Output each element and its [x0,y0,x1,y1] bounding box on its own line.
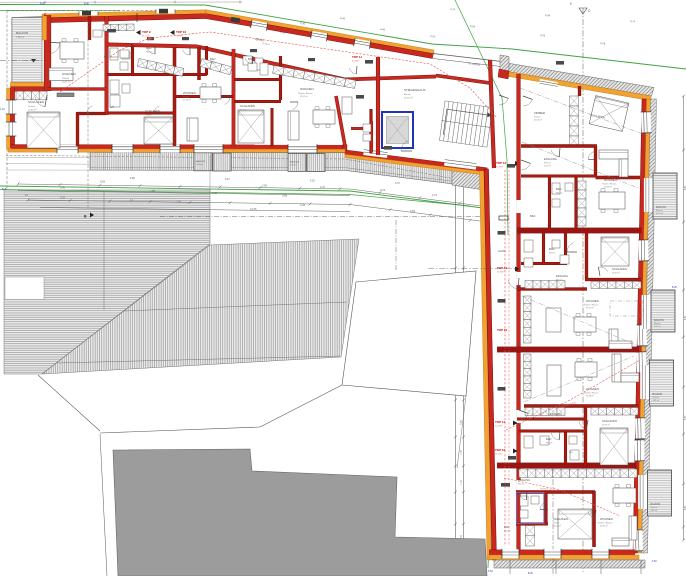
svg-text:4.70: 4.70 [450,7,456,11]
svg-text:SCHLAFEN: SCHLAFEN [553,517,568,521]
svg-text:BALKON: BALKON [653,393,663,396]
svg-text:Fliesen: Fliesen [544,163,550,165]
svg-text:B+B: B+B [528,572,533,575]
svg-text:4.36: 4.36 [300,203,306,207]
svg-text:EINGANG: EINGANG [550,412,562,416]
svg-text:71.99m²: 71.99m² [496,166,504,169]
svg-text:SCHLAFEN: SCHLAFEN [28,100,44,104]
svg-text:ZIMMER: ZIMMER [534,111,545,115]
svg-text:BALKON: BALKON [290,161,299,164]
svg-text:2.90: 2.90 [262,184,268,188]
svg-text:Fliesen: Fliesen [549,253,555,255]
svg-text:Parkett / Fliesen: Parkett / Fliesen [598,522,612,525]
svg-text:3.47: 3.47 [320,185,326,189]
svg-text:WC: WC [569,452,573,454]
svg-text:3.72: 3.72 [432,193,438,197]
svg-text:5.60: 5.60 [652,560,657,563]
svg-text:31.07 m²: 31.07 m² [300,95,308,98]
svg-text:TOP 10: TOP 10 [176,30,187,34]
svg-text:7.80 m²: 7.80 m² [16,36,24,39]
svg-text:5.47: 5.47 [225,178,230,181]
svg-text:SCHLAFEN: SCHLAFEN [240,104,255,108]
svg-text:B+B: B+B [672,286,677,289]
svg-text:GANG: GANG [498,249,506,253]
svg-text:3.40: 3.40 [60,186,66,190]
svg-text:Fliesen: Fliesen [556,193,562,195]
svg-text:WOHNEN: WOHNEN [586,299,599,303]
svg-text:Parkett / Fliesen: Parkett / Fliesen [602,183,616,186]
svg-text:BALKON: BALKON [196,160,205,163]
svg-text:WC: WC [353,128,357,131]
svg-text:Fliesen: Fliesen [651,507,657,509]
svg-text:1.22: 1.22 [460,479,463,485]
svg-text:9.54: 9.54 [470,24,476,28]
svg-text:6.84: 6.84 [410,209,416,213]
svg-text:B+B: B+B [2,188,7,191]
svg-text:3.74: 3.74 [630,19,636,23]
svg-text:2.90: 2.90 [130,177,135,180]
svg-text:WOHNEN: WOHNEN [300,87,314,91]
svg-text:BAD: BAD [210,57,215,61]
svg-text:20.81 m²: 20.81 m² [600,525,608,528]
svg-text:2.30: 2.30 [300,21,306,25]
svg-text:Parkett: Parkett [553,522,560,525]
svg-text:Fliesen: Fliesen [656,210,662,212]
svg-text:TOP 12: TOP 12 [496,161,507,165]
svg-text:2.26: 2.26 [540,33,546,37]
svg-text:B+B: B+B [84,3,89,6]
svg-text:Estrich: Estrich [404,93,411,96]
svg-text:4.81 m²: 4.81 m² [654,325,661,328]
svg-text:Parkett: Parkett [28,105,35,108]
svg-text:Parkett: Parkett [534,116,541,119]
svg-text:54.29m²: 54.29m² [495,425,503,428]
svg-text:9.04: 9.04 [545,13,551,17]
svg-text:25.91 m²: 25.91 m² [62,81,71,84]
svg-text:Parkett: Parkett [183,96,190,99]
svg-text:BALKON: BALKON [651,503,661,506]
svg-text:4.81 m²: 4.81 m² [656,212,663,215]
svg-text:SCHLAFEN: SCHLAFEN [612,267,627,271]
svg-text:EINGANG: EINGANG [544,157,557,161]
svg-text:Parkett: Parkett [62,77,69,80]
svg-text:7.80: 7.80 [176,200,182,204]
svg-text:Parkett / Fliesen: Parkett / Fliesen [298,92,312,95]
svg-text:A/R: A/R [110,106,114,109]
svg-text:Fliesen: Fliesen [210,63,216,65]
svg-text:B+B: B+B [40,3,45,6]
svg-text:3.23: 3.23 [380,188,386,192]
svg-text:Fliesen: Fliesen [518,484,524,486]
svg-text:TOP 11: TOP 11 [352,55,362,59]
svg-text:EINGANG: EINGANG [556,274,568,278]
svg-text:30.48 m²: 30.48 m² [586,395,594,398]
svg-text:BAD: BAD [146,46,151,50]
svg-text:WOHNEN: WOHNEN [62,72,76,76]
svg-text:Fliesen: Fliesen [653,397,659,399]
svg-text:36.20 m²: 36.20 m² [404,97,413,100]
svg-text:BALKON: BALKON [656,206,666,209]
svg-text:SCHLAFEN: SCHLAFEN [602,419,617,423]
svg-text:4.40: 4.40 [380,27,386,32]
svg-text:13.87 m²: 13.87 m² [612,272,620,275]
svg-text:BAD: BAD [530,214,535,218]
svg-text:30.36 m²: 30.36 m² [604,186,612,189]
svg-text:1.20: 1.20 [0,108,5,111]
svg-text:TOP 9: TOP 9 [142,30,151,34]
svg-text:14.01 m²: 14.01 m² [553,525,561,528]
svg-text:WOHNEN: WOHNEN [600,517,613,521]
svg-text:7.88: 7.88 [150,189,156,193]
svg-text:Fliesen: Fliesen [654,323,660,325]
svg-text:9.56: 9.56 [100,180,106,184]
svg-text:BAD: BAD [248,57,253,61]
svg-text:27.37 m²: 27.37 m² [183,99,191,102]
svg-text:TOP 14: TOP 14 [495,420,506,424]
svg-text:4.05 m²: 4.05 m² [550,417,557,420]
svg-text:BAD: BAD [546,437,551,441]
svg-text:6.40: 6.40 [340,16,346,20]
svg-text:WOHNEN: WOHNEN [586,387,599,391]
svg-text:Parkett / Fliesen: Parkett / Fliesen [584,304,598,307]
svg-text:13.97 m²: 13.97 m² [602,424,610,427]
svg-text:3.23: 3.23 [310,180,315,183]
svg-text:56.86m²: 56.86m² [497,271,505,274]
svg-text:BALKON: BALKON [654,319,664,322]
svg-text:STIEGENHAUS: STIEGENHAUS [404,88,426,92]
svg-text:TOP 13: TOP 13 [497,266,508,270]
svg-text:3.20: 3.20 [430,34,436,39]
svg-text:5.60: 5.60 [488,570,493,573]
svg-text:Parkett: Parkett [145,114,152,117]
svg-text:Parkett / Fliesen: Parkett / Fliesen [584,392,598,395]
svg-text:4.81 m²: 4.81 m² [651,509,658,512]
svg-text:5.06 m²: 5.06 m² [196,163,203,166]
svg-text:Fliesen: Fliesen [546,443,552,445]
svg-text:3.88: 3.88 [282,194,288,198]
svg-text:21.65: 21.65 [250,207,257,211]
svg-text:Fliesen: Fliesen [146,52,152,54]
svg-text:Parkett: Parkett [240,109,247,112]
svg-text:5.06 m²: 5.06 m² [290,164,297,167]
svg-text:SCHLAFEN: SCHLAFEN [145,109,160,113]
svg-text:32.07 m²: 32.07 m² [586,307,594,310]
svg-text:Fliesen: Fliesen [556,280,562,282]
svg-text:3.00: 3.00 [212,191,218,195]
svg-text:WOHNEN: WOHNEN [183,91,196,95]
svg-text:TOP 16: TOP 16 [495,448,506,452]
svg-text:BALKON: BALKON [16,31,28,35]
svg-text:BAD: BAD [556,187,561,191]
svg-text:3.72: 3.72 [395,182,400,185]
svg-text:3.42: 3.42 [60,196,66,200]
svg-text:4.81 m²: 4.81 m² [653,399,660,402]
svg-text:5.26 m²: 5.26 m² [544,165,551,168]
svg-text:54.29m²: 54.29m² [495,453,503,456]
svg-text:BAD: BAD [549,247,554,251]
svg-text:12.06 m²: 12.06 m² [534,119,542,122]
svg-text:TOP 15: TOP 15 [497,328,508,332]
svg-text:60.86m²: 60.86m² [352,60,360,63]
svg-text:1.93: 1.93 [460,449,463,455]
svg-text:11.80 m²: 11.80 m² [28,109,37,112]
